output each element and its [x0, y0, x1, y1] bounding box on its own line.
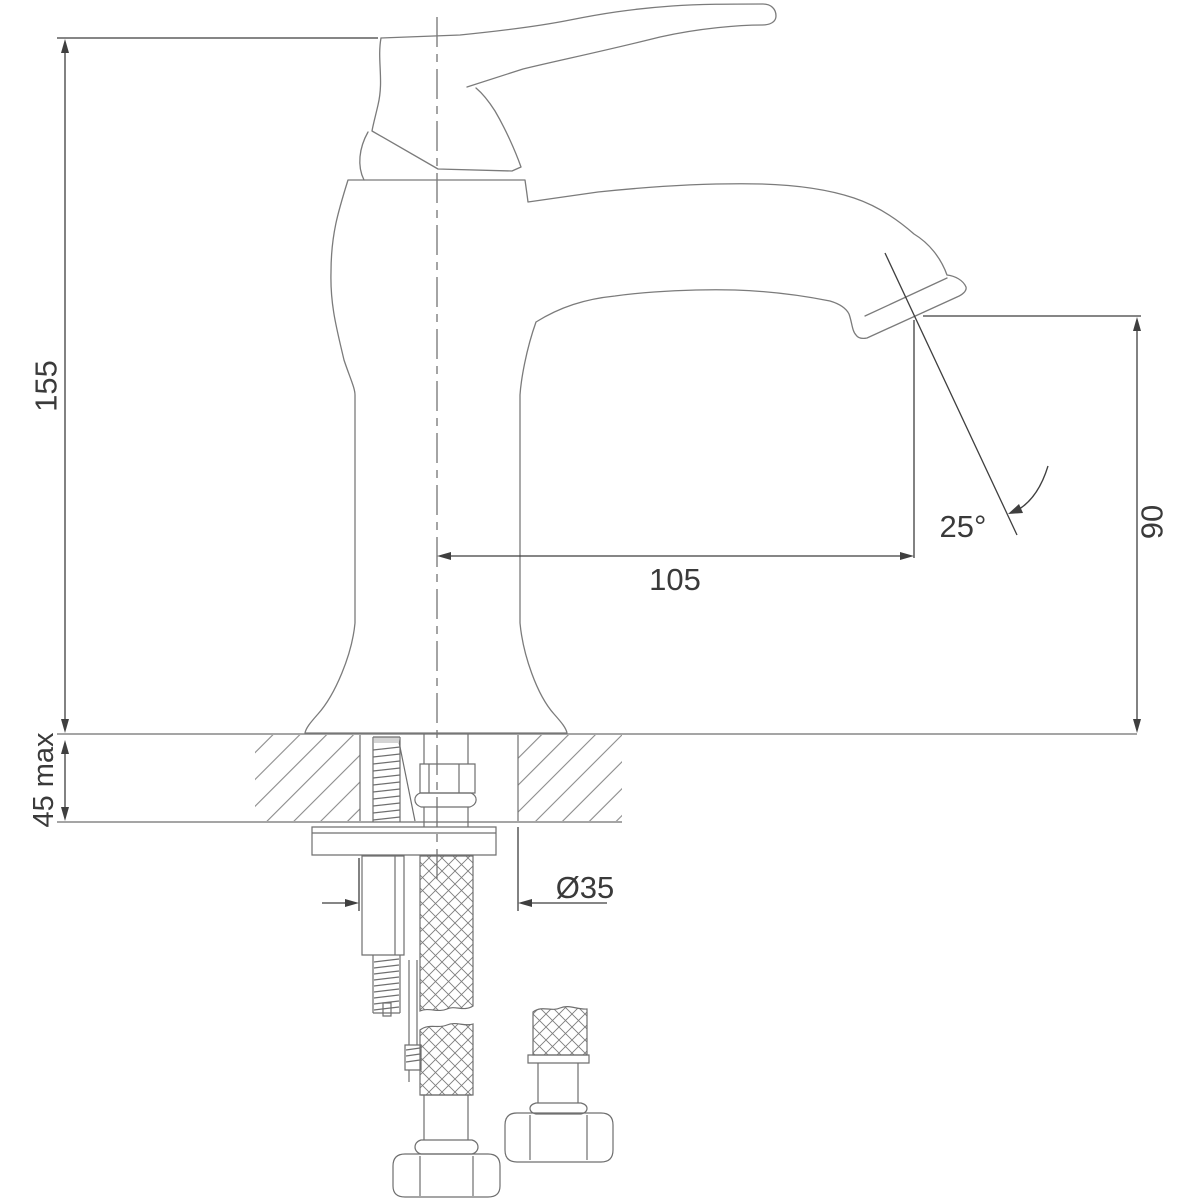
faucet-handle: [372, 4, 776, 171]
dim-45-label: 45 max: [28, 732, 60, 828]
stud-top-cap: [374, 737, 399, 743]
supply-pipe-upper: [424, 734, 468, 764]
dim-d35-arrow-left: [345, 899, 359, 907]
dim-25deg: 25°: [885, 253, 1048, 544]
hose-braid: [533, 1007, 587, 1055]
faucet-dimension-drawing: 155 45 max 105 25° 90 Ø35: [0, 0, 1200, 1200]
dim-45-arrow-down: [61, 807, 69, 821]
dim-105-label: 105: [649, 562, 701, 597]
clamping-washer-plate: [312, 827, 496, 855]
dim-155-arrow-up: [61, 39, 69, 53]
dim-90-label: 90: [1135, 505, 1170, 539]
supply-hose-right: [505, 1007, 613, 1162]
dim-d35-arrow-right: [518, 899, 532, 907]
dim-105-arrow-right: [900, 552, 914, 560]
hose-crimp-collar: [528, 1055, 589, 1063]
countertop-hatch-right: [518, 735, 622, 821]
second-stud-threads: [406, 1048, 420, 1062]
hose-collar-ring: [530, 1103, 587, 1114]
hose-hex-nut: [505, 1113, 613, 1162]
dim-25-label: 25°: [940, 509, 987, 544]
screw-slot: [383, 1003, 391, 1016]
stud-threads: [373, 747, 400, 820]
dim-155: 155: [29, 38, 379, 733]
dim-90-arrow-down: [1133, 719, 1141, 733]
angle-arc-arrow: [1008, 504, 1023, 514]
faucet-body: [305, 132, 966, 733]
countertop-hatch-left: [255, 735, 360, 821]
screw-threads: [374, 959, 399, 1010]
body-and-spout-outline: [305, 180, 966, 733]
hose-ferrule: [421, 1095, 472, 1140]
hose-braid-lower: [420, 1024, 473, 1095]
technical-drawing-canvas: 155 45 max 105 25° 90 Ø35: [0, 0, 1200, 1200]
dim-d35-label: Ø35: [556, 870, 615, 905]
lever-outline: [381, 4, 776, 87]
dim-155-label: 155: [29, 360, 64, 412]
countertop-section: [57, 734, 1137, 822]
dim-45-max: 45 max: [28, 732, 69, 828]
dim-90-arrow-up: [1133, 317, 1141, 331]
dim-105: 105: [437, 320, 914, 597]
hose-ferrule: [538, 1063, 578, 1103]
dim-105-arrow-left: [437, 552, 451, 560]
dim-155-arrow-down: [61, 719, 69, 733]
second-stud: [405, 960, 421, 1082]
handle-cap-outline: [372, 38, 521, 171]
supply-pipe-lower: [424, 807, 468, 827]
hose-braid-upper: [420, 856, 473, 1011]
dim-45-arrow-up: [61, 740, 69, 754]
hose-collar-ring: [415, 1140, 478, 1154]
hex-standoff: [362, 856, 404, 955]
stream-angle-line: [885, 253, 1017, 535]
bonnet-left-edge: [360, 132, 368, 180]
pipe-nut: [420, 764, 475, 793]
pipe-seal-ring: [415, 793, 476, 807]
hose-hex-nut: [393, 1154, 500, 1197]
